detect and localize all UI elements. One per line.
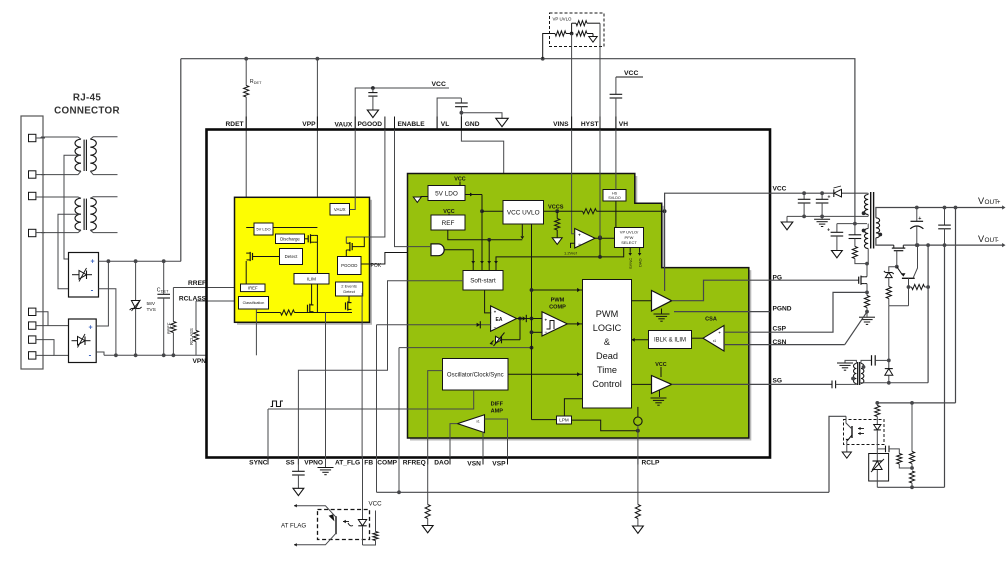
svg-text:LPM: LPM bbox=[559, 418, 569, 423]
svg-text:LOGIC: LOGIC bbox=[593, 323, 622, 333]
svg-text:VPN: VPN bbox=[192, 358, 206, 365]
svg-text:DET: DET bbox=[161, 289, 169, 293]
svg-text:DAO: DAO bbox=[638, 258, 643, 267]
svg-text:+: + bbox=[918, 216, 921, 222]
svg-text:5V LDO: 5V LDO bbox=[256, 226, 270, 231]
svg-text:DAO: DAO bbox=[434, 460, 449, 467]
svg-text:VCCS: VCCS bbox=[548, 205, 564, 211]
svg-text:RREF: RREF bbox=[188, 280, 206, 287]
svg-text:VPP: VPP bbox=[302, 121, 316, 128]
svg-text:RCLASS: RCLASS bbox=[179, 296, 207, 303]
svg-text:VL: VL bbox=[441, 121, 449, 128]
svg-text:IBLK & ILIM: IBLK & ILIM bbox=[654, 338, 686, 344]
svg-text:RCLP: RCLP bbox=[642, 460, 661, 467]
svg-text:Time: Time bbox=[597, 365, 617, 375]
svg-text:VPNO: VPNO bbox=[304, 460, 323, 467]
svg-text:VSN: VSN bbox=[467, 461, 481, 468]
svg-text:Soft-start: Soft-start bbox=[470, 278, 496, 285]
svg-text:SYNC: SYNC bbox=[249, 460, 268, 467]
svg-text:-: - bbox=[89, 351, 92, 360]
svg-text:5V LDO: 5V LDO bbox=[435, 190, 458, 197]
svg-text:SS: SS bbox=[286, 460, 295, 467]
svg-text:SYNC: SYNC bbox=[628, 258, 633, 269]
svg-text:PGOOD: PGOOD bbox=[358, 121, 383, 128]
svg-text:IREF: IREF bbox=[248, 285, 258, 290]
svg-text:CSP: CSP bbox=[773, 325, 787, 332]
svg-text:RDET: RDET bbox=[226, 121, 244, 128]
svg-text:−: − bbox=[544, 329, 547, 334]
svg-text:−: − bbox=[578, 242, 581, 247]
svg-text:TVS: TVS bbox=[147, 307, 156, 313]
svg-text:Dead: Dead bbox=[596, 351, 618, 361]
svg-text:RCLASS: RCLASS bbox=[189, 328, 194, 345]
svg-text:PWM: PWM bbox=[551, 298, 565, 304]
svg-text:x1: x1 bbox=[476, 419, 480, 423]
svg-text:-: - bbox=[91, 286, 94, 295]
svg-text:&: & bbox=[604, 337, 610, 347]
svg-text:COMP: COMP bbox=[377, 460, 397, 467]
svg-text:SELECT: SELECT bbox=[621, 240, 637, 245]
svg-text:Control: Control bbox=[592, 379, 622, 389]
svg-text:VCC: VCC bbox=[624, 70, 638, 77]
svg-text:+: + bbox=[578, 232, 581, 237]
svg-text:VAUX: VAUX bbox=[334, 122, 352, 129]
svg-text:Discharge: Discharge bbox=[280, 236, 300, 241]
svg-text:VINS: VINS bbox=[553, 121, 569, 128]
svg-text:VCC UVLO: VCC UVLO bbox=[507, 210, 540, 217]
svg-text:ENABLE: ENABLE bbox=[398, 121, 426, 128]
svg-text:+: + bbox=[88, 325, 92, 332]
svg-text:COMP: COMP bbox=[549, 305, 566, 311]
svg-text:AT_FLG: AT_FLG bbox=[335, 460, 360, 467]
svg-text:Detect: Detect bbox=[343, 289, 355, 294]
svg-text:VCC: VCC bbox=[773, 186, 787, 193]
svg-text:VH: VH bbox=[619, 121, 628, 128]
svg-text:HS: HS bbox=[612, 191, 618, 195]
svg-text:PWM: PWM bbox=[596, 309, 618, 319]
svg-text:SG: SG bbox=[773, 377, 783, 384]
svg-text:x1: x1 bbox=[713, 339, 717, 343]
svg-text:+: + bbox=[828, 194, 831, 200]
svg-text:FB: FB bbox=[364, 460, 373, 467]
svg-text:VCC: VCC bbox=[655, 362, 666, 368]
svg-text:GND: GND bbox=[465, 121, 480, 128]
svg-text:ILIM: ILIM bbox=[307, 276, 316, 281]
svg-text:RFREQ: RFREQ bbox=[403, 460, 426, 467]
svg-text:RREF: RREF bbox=[166, 322, 171, 334]
svg-text:+: + bbox=[544, 317, 547, 322]
svg-text:PGND: PGND bbox=[773, 305, 792, 312]
svg-text:VAUX: VAUX bbox=[334, 207, 346, 212]
svg-text:RJ-45: RJ-45 bbox=[73, 93, 101, 104]
svg-text:58V: 58V bbox=[147, 301, 156, 307]
svg-text:VP UVLO: VP UVLO bbox=[553, 17, 573, 22]
svg-text:+: + bbox=[827, 227, 830, 233]
svg-text:DIFF: DIFF bbox=[491, 402, 504, 408]
svg-text:AMP: AMP bbox=[491, 409, 504, 415]
svg-text:VCC: VCC bbox=[432, 81, 446, 88]
svg-text:-: - bbox=[997, 237, 999, 244]
svg-text:+: + bbox=[997, 199, 1001, 206]
svg-text:SVLDO: SVLDO bbox=[608, 196, 621, 200]
svg-text:EA: EA bbox=[496, 317, 503, 323]
svg-text:CSA: CSA bbox=[705, 317, 717, 323]
svg-text:CONNECTOR: CONNECTOR bbox=[54, 106, 120, 117]
svg-text:+: + bbox=[90, 259, 94, 266]
svg-text:HYST: HYST bbox=[581, 121, 599, 128]
svg-text:VSP: VSP bbox=[492, 461, 506, 468]
svg-text:AT FLAG: AT FLAG bbox=[281, 523, 306, 530]
svg-text:Detect: Detect bbox=[285, 254, 298, 259]
svg-text:POK: POK bbox=[371, 263, 382, 269]
svg-text:REF: REF bbox=[442, 220, 455, 227]
svg-text:2 Events: 2 Events bbox=[341, 284, 357, 289]
svg-text:Classification: Classification bbox=[243, 301, 265, 305]
svg-text:DET: DET bbox=[254, 81, 262, 85]
svg-text:PGOOD: PGOOD bbox=[341, 263, 357, 268]
svg-text:Oscillator/Clock/Sync: Oscillator/Clock/Sync bbox=[447, 372, 504, 378]
svg-text:VCC: VCC bbox=[369, 501, 383, 508]
svg-text:1.2Vref: 1.2Vref bbox=[564, 251, 578, 256]
